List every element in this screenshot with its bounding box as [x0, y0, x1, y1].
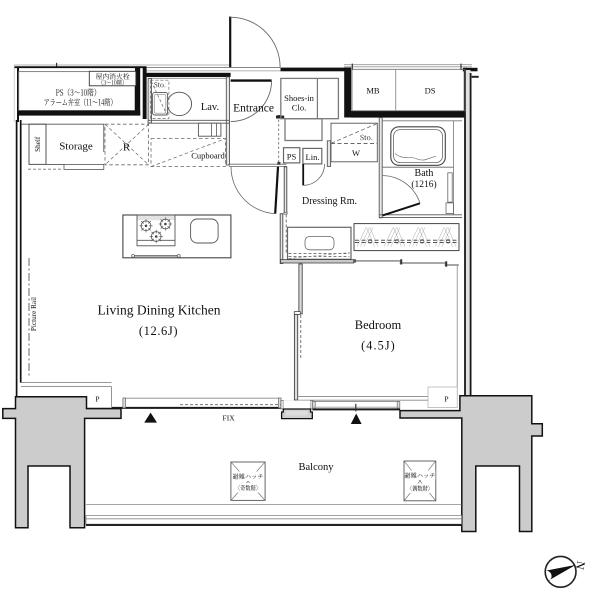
svg-text:R: R — [123, 142, 131, 154]
svg-text:W: W — [352, 148, 360, 158]
svg-text:Bath: Bath — [415, 168, 434, 179]
svg-text:FIX: FIX — [223, 414, 236, 423]
svg-text:(4.5J): (4.5J) — [361, 339, 396, 353]
svg-text:Picture Rail: Picture Rail — [30, 297, 38, 331]
svg-text:MB: MB — [366, 86, 380, 96]
svg-text:Lin.: Lin. — [306, 152, 320, 162]
svg-text:DS: DS — [425, 86, 436, 96]
svg-text:P: P — [444, 395, 448, 404]
svg-text:PS: PS — [287, 152, 297, 162]
svg-text:Dressing Rm.: Dressing Rm. — [302, 196, 357, 207]
svg-text:Clo.: Clo. — [292, 102, 306, 112]
svg-text:(12.6J): (12.6J) — [139, 324, 178, 338]
svg-text:Balcony: Balcony — [299, 462, 335, 473]
svg-text:Storage: Storage — [59, 141, 93, 153]
svg-text:P: P — [95, 395, 99, 404]
svg-text:Cupboard: Cupboard — [191, 151, 225, 161]
svg-text:Bedroom: Bedroom — [355, 318, 402, 332]
svg-text:Lav.: Lav. — [201, 102, 219, 113]
svg-text:(1216): (1216) — [411, 179, 436, 190]
svg-text:Living Dining Kitchen: Living Dining Kitchen — [98, 303, 221, 318]
svg-text:Shelf: Shelf — [34, 136, 42, 152]
svg-text:Entrance: Entrance — [233, 103, 274, 115]
